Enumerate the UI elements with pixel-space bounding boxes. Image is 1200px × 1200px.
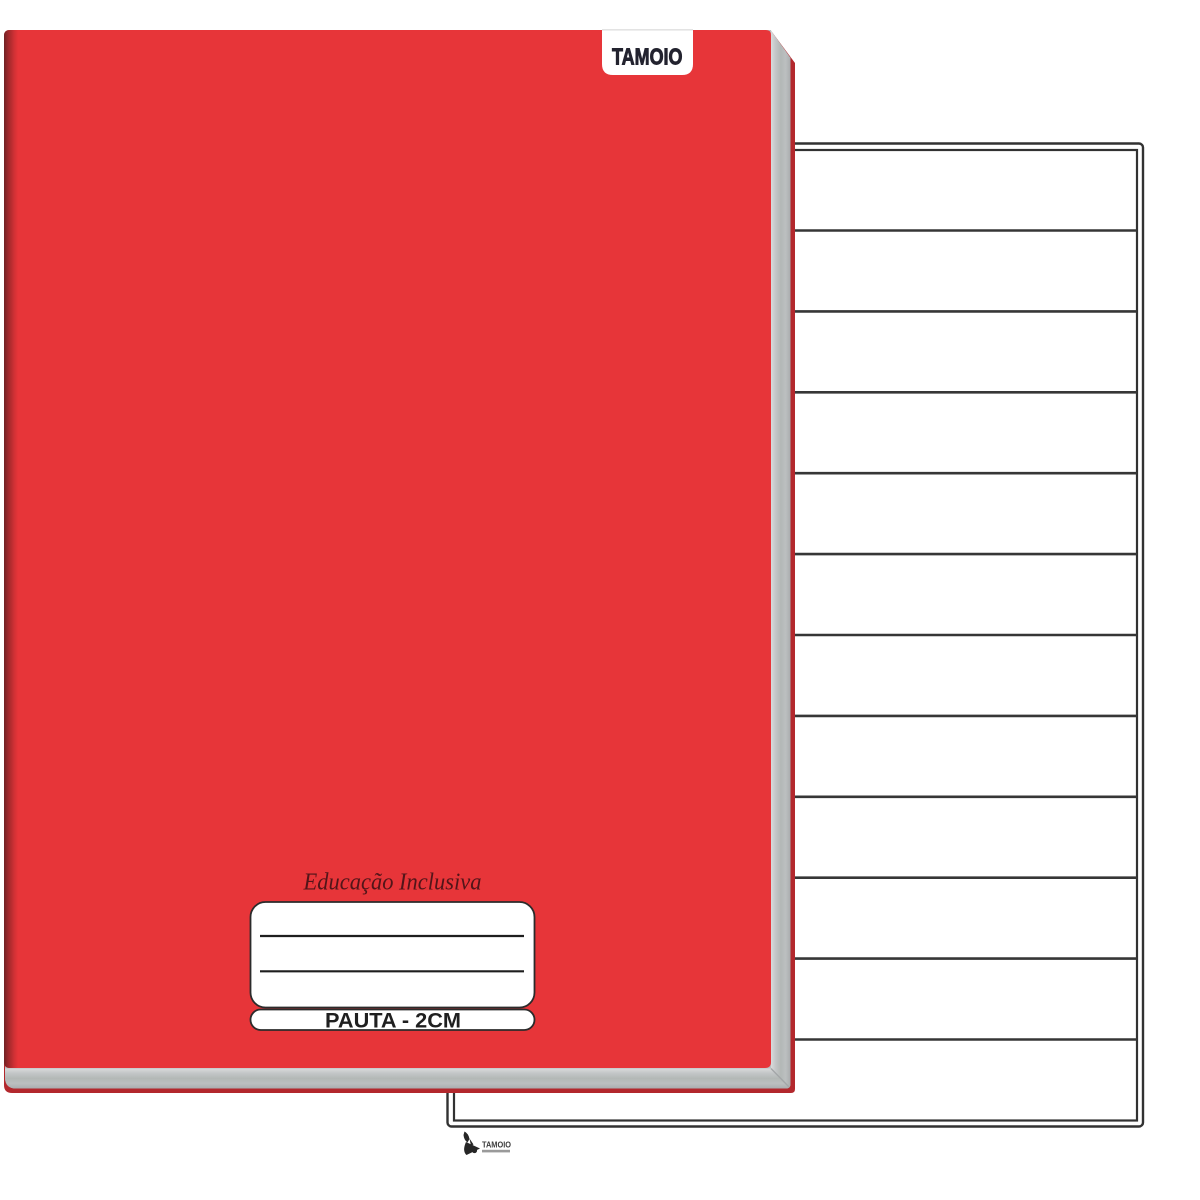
svg-text:Educação Inclusiva: Educação Inclusiva — [303, 870, 482, 896]
svg-text:TAMOIO: TAMOIO — [612, 44, 683, 70]
svg-text:PAUTA - 2CM: PAUTA - 2CM — [325, 1009, 461, 1033]
svg-text:TAMOIO: TAMOIO — [482, 1140, 511, 1150]
